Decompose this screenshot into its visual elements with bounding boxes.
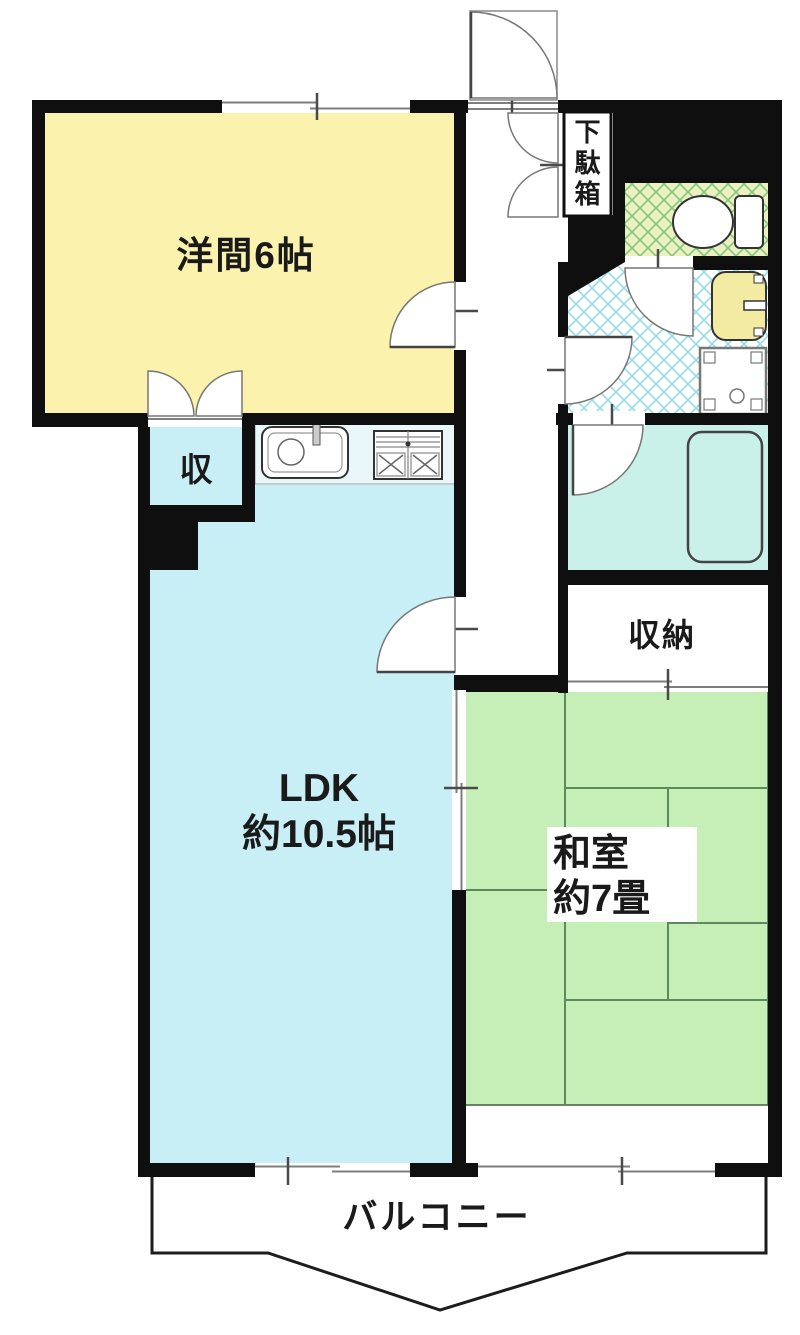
japanese-room-size-label: 約7畳 [553,878,650,920]
wall-segment [138,425,150,507]
wall-segment [410,1163,478,1177]
balcony: バルコニー [152,1177,766,1310]
wall-segment [556,413,573,425]
washbasin-icon [712,272,766,340]
wall-segment [242,413,455,425]
wall-segment [558,262,568,337]
wall-segment [454,113,466,282]
ldk-size-label: 約10.5帖 [242,813,396,856]
wall-segment [768,100,782,1177]
wall-segment [558,404,568,693]
wall-segment [138,522,198,570]
wall-segment [645,413,768,425]
sliding-door [452,690,466,890]
floor-plan-drawing: 下 駄 箱 バルコニー 洋間6帖 収 LDK 約10.5帖 和室 約7畳 収納 [0,0,800,1335]
shoe-cabinet-box: 下 駄 箱 [564,112,611,216]
wall-segment [410,100,468,113]
japanese-room-label: 和室 [553,832,629,875]
kitchen-stove-icon [374,431,442,479]
balcony-outline [152,1177,766,1310]
toilet-icon [673,196,763,248]
wall-segment [452,890,466,1163]
storage-room-label: 収 [180,451,214,488]
wall-segment [32,100,222,113]
ldk-label: LDK [279,767,359,810]
washing-machine-pan-icon [700,348,766,414]
wall-segment [454,675,568,692]
window [255,1163,410,1177]
shoe-cabinet-label-char: 下 [574,117,600,147]
wall-segment [613,113,782,183]
shoe-cabinet-door-swing [508,167,558,217]
wall-segment [138,570,150,1175]
balcony-label: バルコニー [342,1198,531,1237]
floor-plan: 下 駄 箱 バルコニー 洋間6帖 収 LDK 約10.5帖 和室 約7畳 収納 [0,0,800,1335]
wall-segment [138,505,255,522]
closet-label: 収納 [628,617,696,653]
wall-segment [693,256,768,270]
western-room-label: 洋間6帖 [176,235,316,276]
wall-segment [454,350,466,597]
wall-segment [568,215,625,262]
wall-segment [32,100,45,427]
wall-segment [242,413,255,507]
shoe-cabinet-label-char: 箱 [574,179,600,209]
window [478,1163,715,1177]
wall-segment [32,413,150,427]
wall-segment [558,570,768,585]
wall-segment [138,1163,255,1177]
kitchen-counter [255,416,455,484]
shoe-cabinet-label-char: 駄 [574,148,600,178]
shoe-cabinet-door-swing [508,113,558,163]
